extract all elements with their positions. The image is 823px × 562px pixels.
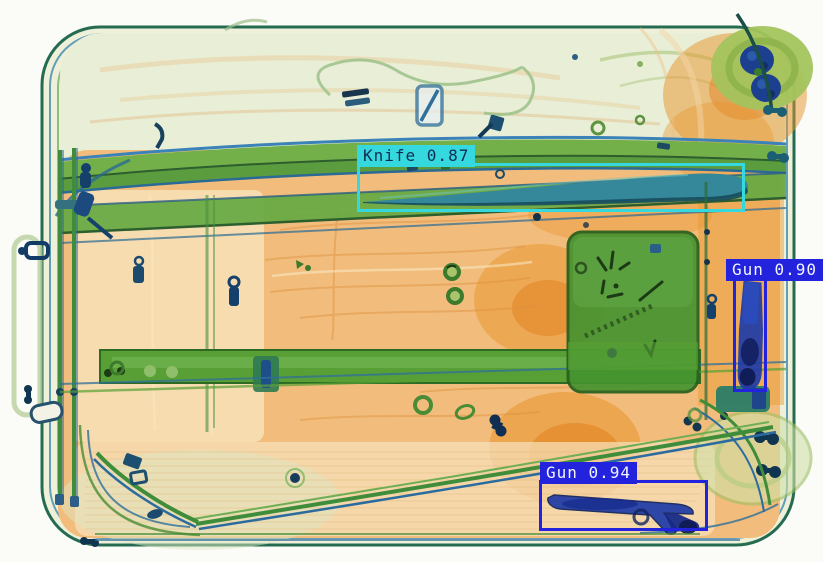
detection-label-knife: Knife 0.87 <box>357 145 475 167</box>
xray-scan-image: Knife 0.87 Gun 0.90 Gun 0.94 const data … <box>0 0 823 562</box>
detection-label-gun-right: Gun 0.90 <box>726 259 823 281</box>
xray-scene <box>0 0 823 562</box>
detection-box-gun-bottom: Gun 0.94 <box>539 480 708 531</box>
detection-box-knife: Knife 0.87 <box>357 163 745 212</box>
detection-box-gun-right: Gun 0.90 <box>733 277 767 392</box>
detection-label-gun-bottom: Gun 0.94 <box>540 462 637 484</box>
